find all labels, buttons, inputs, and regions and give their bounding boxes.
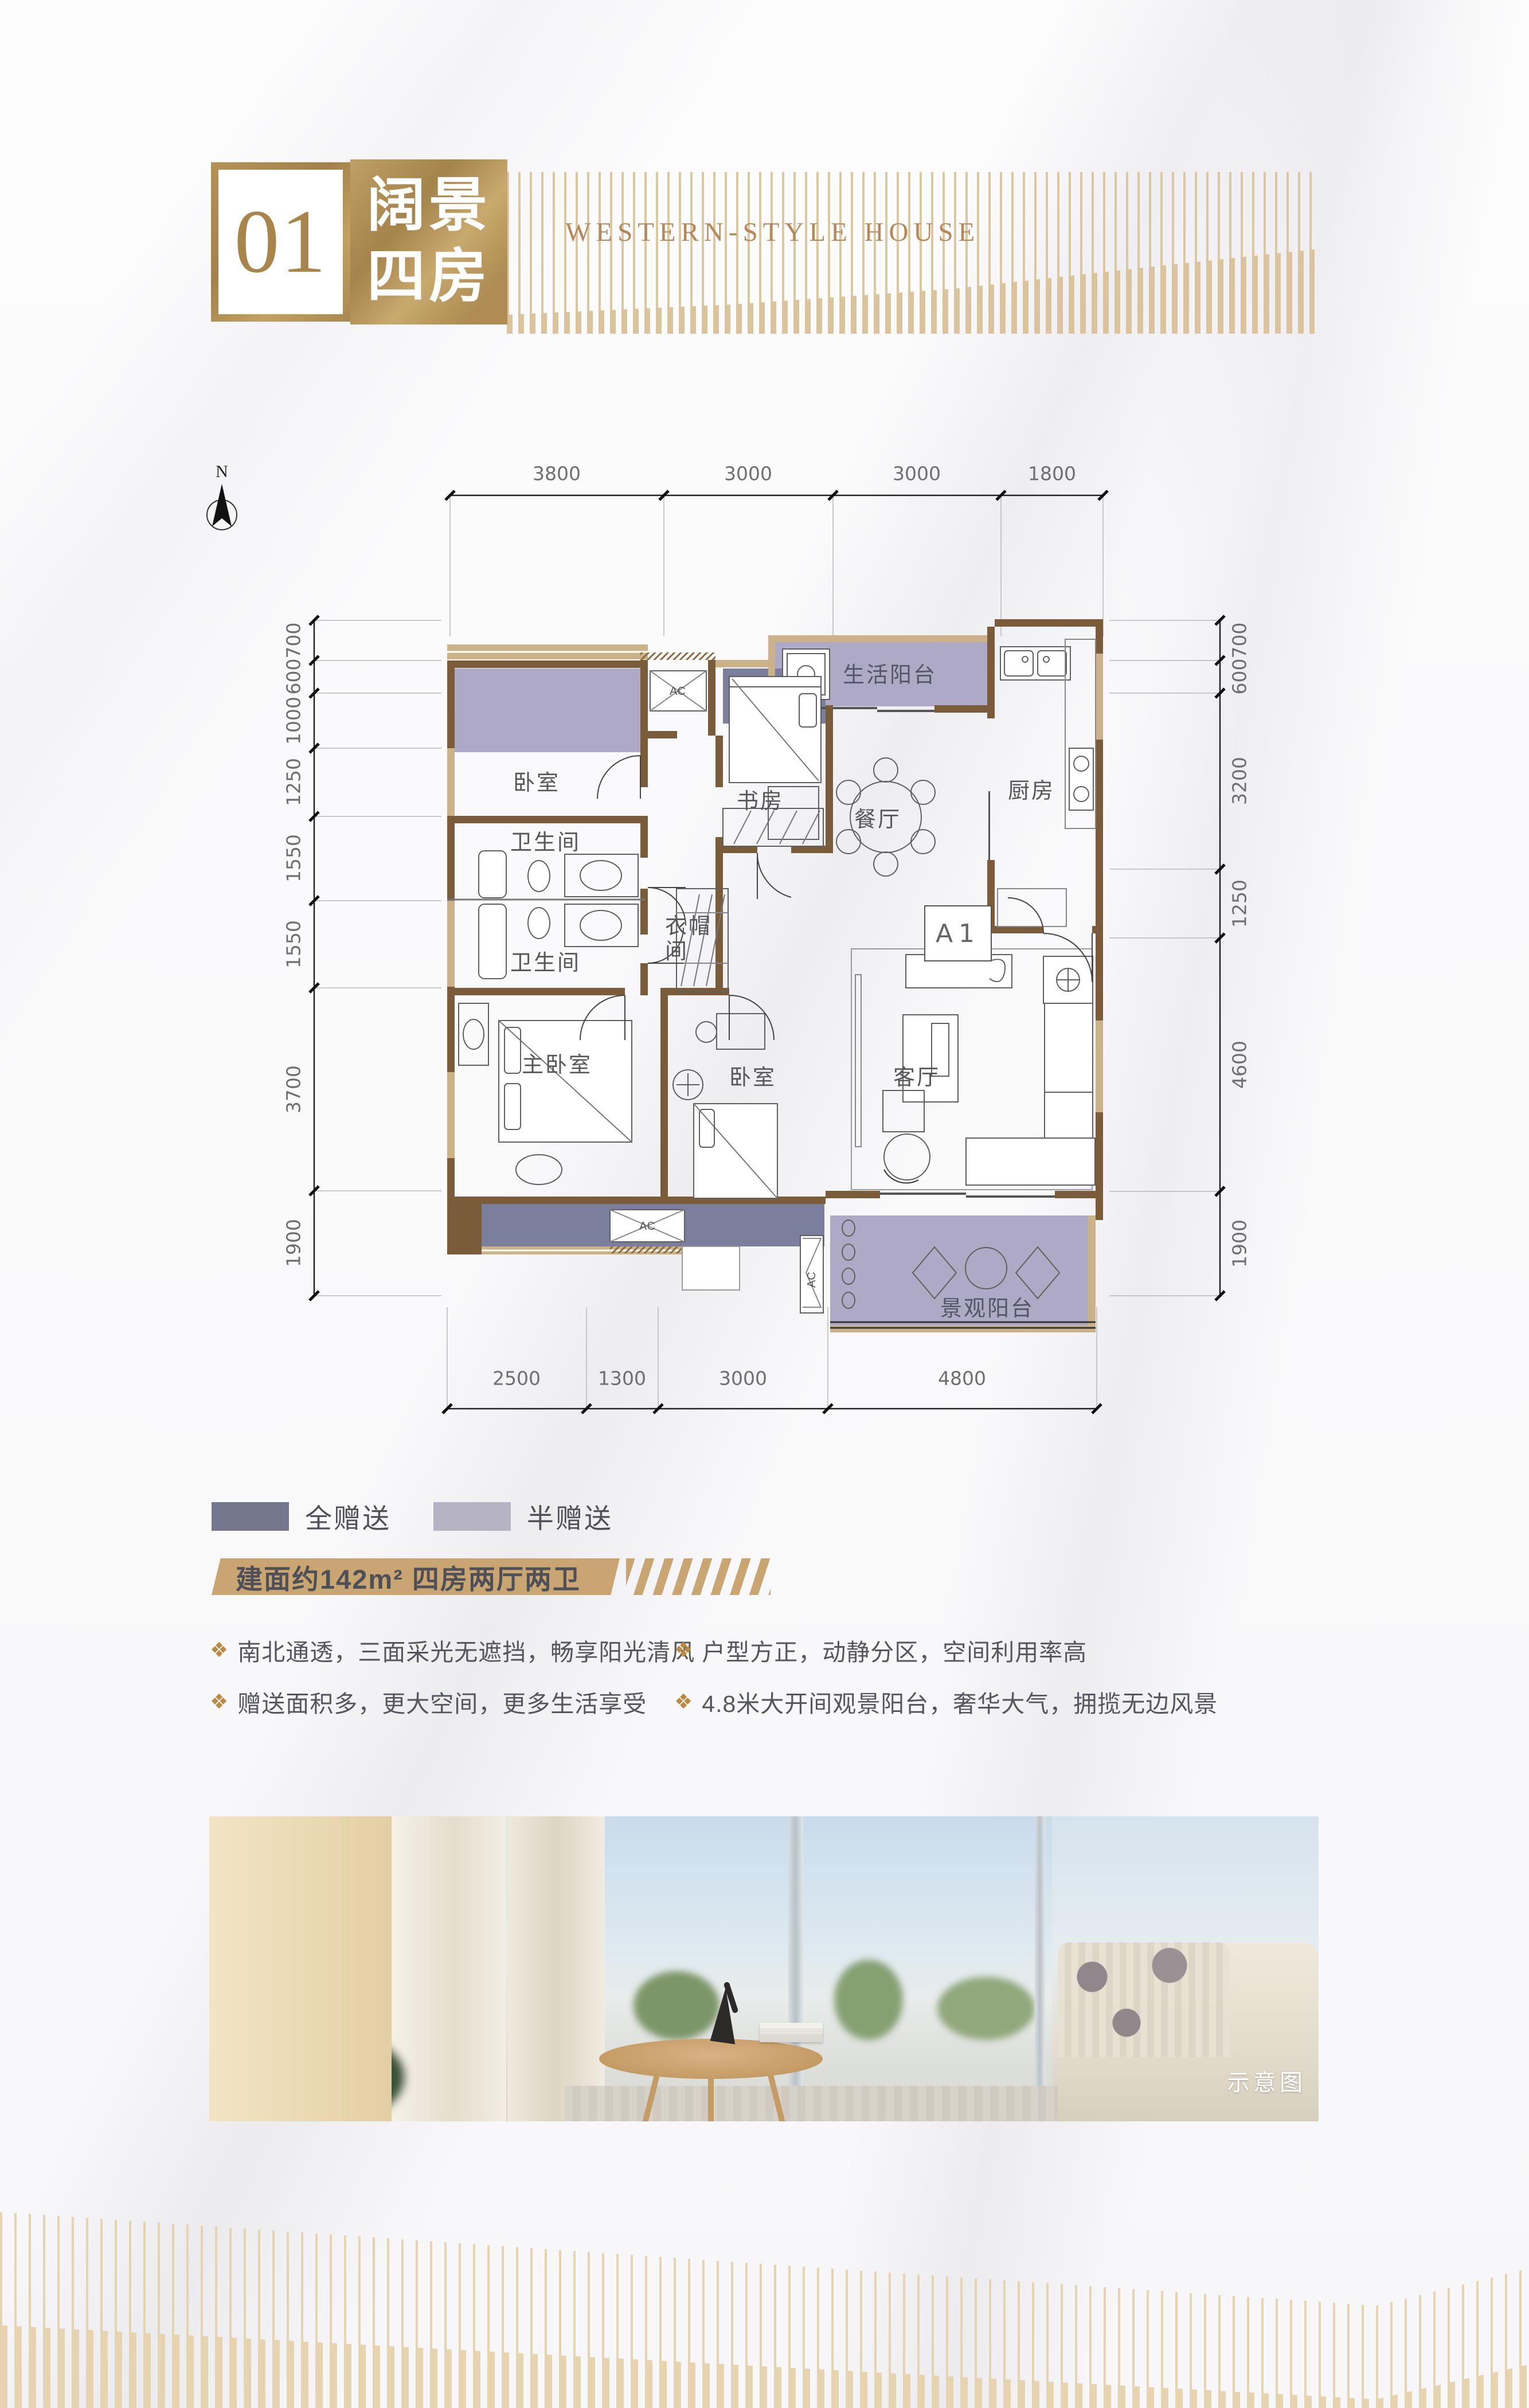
- legend-half-label: 半赠送: [527, 1496, 613, 1536]
- room-label-master: 主卧室: [522, 1053, 592, 1077]
- dim-left-7: 3700: [283, 1065, 305, 1113]
- ac-label-3: AC: [805, 1272, 818, 1288]
- photo-throw-blanket: [1058, 1942, 1230, 2057]
- dim-bottom-4: 4800: [938, 1367, 986, 1390]
- ac-label-1: AC: [670, 685, 686, 698]
- diamond-bullet-icon: ❖: [210, 1638, 228, 1662]
- dim-right-3: 3200: [1229, 757, 1251, 805]
- dim-right-4: 1250: [1229, 879, 1251, 928]
- unit-label-box: A1: [925, 906, 991, 961]
- floor-plan: A1 卧室 书房 生活阳台 厨房 餐厅 卫生间 卫生间 衣帽 间 主卧室 卧室 …: [447, 619, 1106, 1347]
- photo-rug: [565, 2086, 1081, 2121]
- room-label-cloak-2: 间: [665, 940, 689, 964]
- photo-books: [760, 2023, 823, 2042]
- legend-full-label: 全赠送: [305, 1496, 391, 1536]
- diamond-bullet-icon: ❖: [674, 1690, 693, 1714]
- north-arrow-icon: [202, 482, 242, 537]
- header-stripe-band: WESTERN-STYLE HOUSE: [507, 172, 1315, 334]
- feature-text-2: 赠送面积多，更大空间，更多生活享受: [237, 1684, 647, 1719]
- room-label-cloak-1: 衣帽: [665, 914, 712, 939]
- dim-left-3: 1000: [283, 697, 305, 745]
- unit-label: A1: [936, 919, 980, 948]
- feature-text-3: 户型方正，动静分区，空间利用率高: [702, 1633, 1087, 1667]
- room-label-life-balcony: 生活阳台: [843, 663, 937, 687]
- legend-full-gift: 全赠送: [212, 1496, 391, 1536]
- room-label-dining: 餐厅: [854, 808, 901, 832]
- dim-left-4: 1250: [283, 758, 305, 806]
- dim-left-2: 600: [283, 659, 305, 695]
- room-label-bath2: 卫生间: [510, 951, 581, 975]
- area-banner-text: 建面约142m² 四房两厅两卫: [212, 1557, 581, 1597]
- dim-left-5: 1550: [283, 834, 305, 882]
- diamond-bullet-icon: ❖: [210, 1690, 228, 1714]
- photo-curtain: [392, 1816, 506, 2121]
- dim-top-3: 3000: [893, 463, 941, 485]
- feature-item-2: ❖ 赠送面积多，更大空间，更多生活享受: [210, 1684, 647, 1719]
- feature-item-4: ❖ 4.8米大开间观景阳台，奢华大气，拥揽无边风景: [674, 1684, 1218, 1719]
- header-number-box: 01: [211, 162, 350, 322]
- photo-left-panel: [209, 1816, 392, 2121]
- dim-bottom-1: 2500: [492, 1367, 541, 1390]
- dim-right-1: 700: [1229, 623, 1251, 659]
- room-label-bedroom2: 卧室: [729, 1066, 776, 1090]
- legend-full-swatch: [212, 1502, 289, 1531]
- feature-item-1: ❖ 南北通透，三面采光无遮挡，畅享阳光清风: [210, 1633, 695, 1667]
- dim-bottom-3: 3000: [719, 1367, 767, 1390]
- area-banner: 建面约142m² 四房两厅两卫: [212, 1558, 620, 1595]
- banner-stripes: [626, 1558, 771, 1595]
- photo-caption: 示意图: [1227, 2064, 1306, 2097]
- ac-label-2: AC: [639, 1220, 655, 1233]
- north-label: N: [202, 462, 242, 482]
- feature-text-1: 南北通透，三面采光无遮挡，畅享阳光清风: [237, 1633, 695, 1667]
- room-label-bedroom1: 卧室: [513, 771, 560, 795]
- floor-plan-drawing: A1 卧室 书房 生活阳台 厨房 餐厅 卫生间 卫生间 衣帽 间 主卧室 卧室 …: [447, 619, 1106, 1347]
- photo-door-frame: [788, 1816, 803, 2121]
- legend-half-swatch: [433, 1502, 511, 1531]
- diamond-bullet-icon: ❖: [674, 1638, 693, 1662]
- header-title-line1: 阔景: [367, 174, 491, 239]
- feature-text-4: 4.8米大开间观景阳台，奢华大气，拥揽无边风景: [702, 1684, 1218, 1719]
- bottom-fringe-decoration: [0, 2190, 1529, 2408]
- room-label-bath1: 卫生间: [510, 831, 581, 855]
- dim-right-6: 1900: [1229, 1219, 1251, 1268]
- header-title-line2: 四房: [367, 245, 491, 310]
- brochure-page: WESTERN-STYLE HOUSE 01 阔景 四房 N: [0, 0, 1529, 2408]
- feature-item-3: ❖ 户型方正，动静分区，空间利用率高: [674, 1633, 1087, 1667]
- legend-half-gift: 半赠送: [433, 1496, 613, 1536]
- dim-top-1: 3800: [533, 463, 581, 485]
- dim-left-6: 1550: [283, 920, 305, 968]
- photo-coffee-table: [599, 2039, 823, 2079]
- dim-top-4: 1800: [1028, 463, 1076, 485]
- north-compass: N: [202, 462, 242, 540]
- dim-top-2: 3000: [724, 463, 772, 485]
- header-title-block: 阔景 四房: [350, 159, 507, 325]
- dim-left-1: 700: [283, 623, 305, 659]
- dim-left-8: 1900: [283, 1219, 305, 1267]
- header-number: 01: [234, 190, 327, 294]
- dim-bottom-2: 1300: [598, 1367, 646, 1390]
- dim-right-2: 600: [1229, 659, 1251, 695]
- interior-photo: 示意图: [209, 1816, 1319, 2121]
- room-label-view-balcony: 景观阳台: [940, 1297, 1034, 1321]
- header-subtitle: WESTERN-STYLE HOUSE: [565, 217, 980, 248]
- room-label-study: 书房: [737, 789, 784, 814]
- dim-right-5: 4600: [1229, 1041, 1251, 1089]
- room-label-living: 客厅: [893, 1066, 940, 1090]
- room-label-kitchen: 厨房: [1008, 779, 1055, 803]
